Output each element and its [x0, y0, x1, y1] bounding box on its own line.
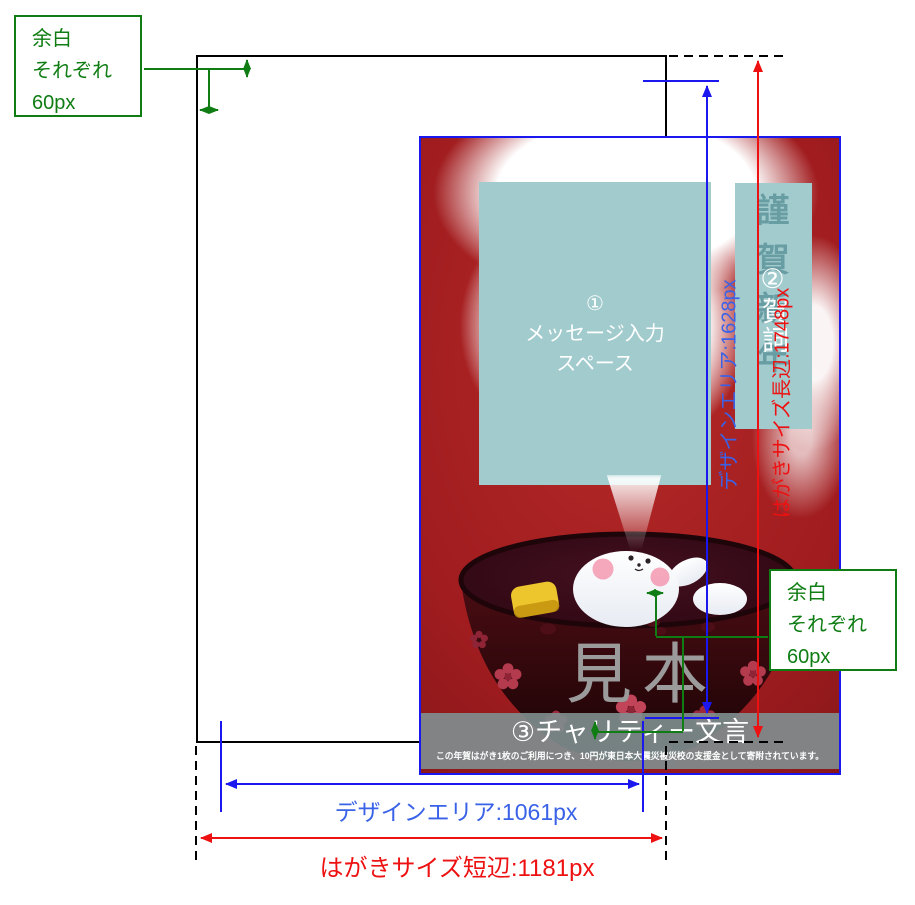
margin-note-line3: 60px — [32, 87, 140, 119]
charity-label: ③チャリティー文言 — [511, 714, 749, 750]
design-width-label: デザインエリア:1061px — [335, 793, 578, 827]
card-height-label: はがきサイズ長辺:1748px — [766, 288, 795, 519]
shiratama-ball — [693, 583, 747, 615]
message-area-line2: スペース — [556, 349, 634, 379]
margin-note-line3: 60px — [787, 641, 895, 673]
margin-note-line1: 余白 — [32, 23, 140, 55]
margin-note-line2: それぞれ — [787, 609, 895, 641]
margin-note-line2: それぞれ — [32, 55, 140, 87]
charity-area: ③チャリティー文言 この年賀はがき1枚のご利用につき、10円が東日本大震災被災校… — [421, 713, 839, 769]
charity-fine-print: この年賀はがき1枚のご利用につき、10円が東日本大震災被災校の支援金として寄附さ… — [436, 750, 824, 763]
margin-note-line1: 余白 — [787, 577, 895, 609]
message-input-area: ① メッセージ入力 スペース — [479, 182, 711, 485]
message-area-number: ① — [586, 289, 604, 319]
card-width-label: はがきサイズ短辺:1181px — [320, 848, 595, 883]
message-area-line1: メッセージ入力 — [525, 319, 665, 349]
sample-watermark: 見本 — [512, 638, 772, 710]
margin-note-bottom-right: 余白 それぞれ 60px — [769, 569, 897, 671]
margin-note-top-left: 余白 それぞれ 60px — [14, 15, 142, 117]
design-height-label: デザインエリア:1628px — [713, 279, 742, 490]
diagram-canvas: ① メッセージ入力 スペース 謹賀新年 ②賀詞 — [0, 0, 915, 905]
postcard-outline: ① メッセージ入力 スペース 謹賀新年 ②賀詞 — [196, 55, 667, 743]
